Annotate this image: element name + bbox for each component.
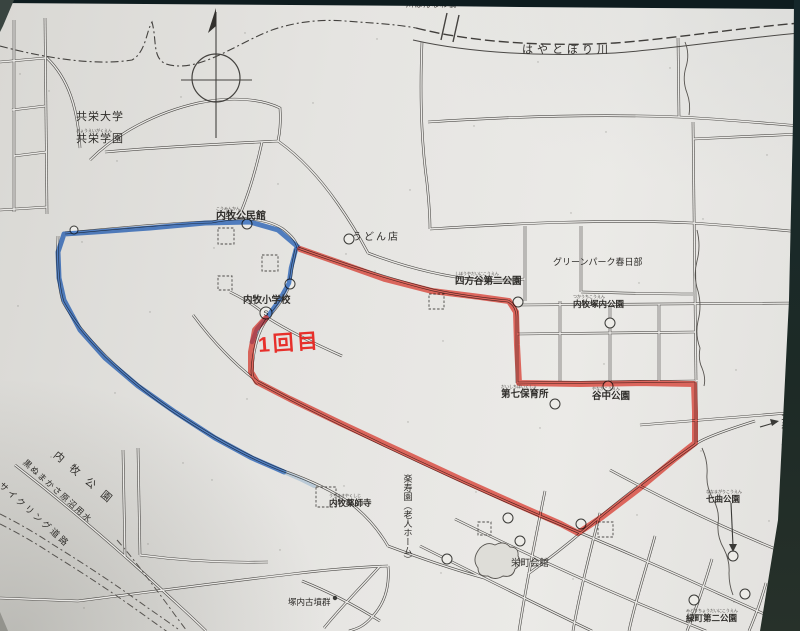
map-photo: S 共栄大学きょうえいがくえん共栄学園川はんなわ橋はやとぼり川こうみんかん内牧公… xyxy=(0,0,800,631)
map-label-nanamagari-park-text: 七曲公園 xyxy=(706,494,740,504)
map-label-hannawa-bridge: 川はんなわ橋 xyxy=(406,1,457,9)
handwritten-note-day1: 1回目 xyxy=(257,325,322,359)
map-label-uchimaki-elementary: 内牧小学校 xyxy=(243,296,291,306)
map-label-daishichi-nursery-text: 第七保育所 xyxy=(501,389,549,400)
map-label-hayatobori-river: はやとぼり川 xyxy=(522,45,612,57)
map-label-rakujuen-home-text: 楽寿園（老人ホーム） xyxy=(402,474,412,564)
map-label-midoricho-daini-park-text: 緑町第二公園 xyxy=(686,613,737,623)
map-label-kofun-group: 塚内古墳群 xyxy=(288,598,331,607)
map-label-kominkan: こうみんかん内牧公民館 xyxy=(216,207,266,223)
map-label-sakaecho-hall: 栄町会館 xyxy=(511,559,549,569)
map-label-tsukauchi-park: つかうちこうえん内牧塚内公園 xyxy=(573,295,624,309)
map-label-tsukauchi-park-text: 内牧塚内公園 xyxy=(573,299,624,309)
map-label-shihoya-daini-park: しほうやだいにこうえん四方谷第二公園 xyxy=(455,272,522,287)
map-label-uchimaki-elementary-text: 内牧小学校 xyxy=(243,295,291,306)
map-label-rakujuen-home: 楽寿園（老人ホーム） xyxy=(402,474,411,564)
map-labels-layer: 共栄大学きょうえいがくえん共栄学園川はんなわ橋はやとぼり川こうみんかん内牧公民館… xyxy=(0,0,800,631)
map-label-kita-kasukabe-station-text: 北春日部駅 xyxy=(779,412,790,460)
map-label-kita-kasukabe-station: 北春日部駅 xyxy=(779,412,789,460)
map-label-yakushiji-temple: うちまきやくしじ内牧薬師寺 xyxy=(329,494,372,508)
map-label-yanaka-park: やなかこうえん谷中公園 xyxy=(592,387,630,402)
map-label-yanaka-park-text: 谷中公園 xyxy=(592,391,630,402)
map-label-kofun-group-text: 塚内古墳群 xyxy=(288,597,331,607)
map-label-udon-shop: うどん店 xyxy=(352,233,400,244)
map-label-kyoei-univ: 共栄大学 xyxy=(76,112,124,124)
map-label-kyoei-univ-text: 共栄大学 xyxy=(76,111,124,123)
map-label-yakushiji-temple-text: 内牧薬師寺 xyxy=(329,498,372,508)
map-label-greenpark-kasukabe: グリーンパーク春日部 xyxy=(553,258,643,267)
map-label-daishichi-nursery: だいしちほいくしょ第七保育所 xyxy=(501,385,549,400)
map-label-midoricho-daini-park: みどりちょうだいにこうえん緑町第二公園 xyxy=(686,609,738,623)
map-label-greenpark-kasukabe-text: グリーンパーク春日部 xyxy=(553,257,643,267)
map-label-kominkan-text: 内牧公民館 xyxy=(216,211,266,222)
map-label-kyoei-gakuen-text: 共栄学園 xyxy=(76,133,124,145)
map-label-sakaecho-hall-text: 栄町会館 xyxy=(511,558,549,569)
map-label-hannawa-bridge-text: 川はんなわ橋 xyxy=(406,0,457,9)
map-label-nanamagari-park: ななまがりこうえん七曲公園 xyxy=(706,490,742,504)
map-label-shihoya-daini-park-text: 四方谷第二公園 xyxy=(455,276,522,287)
map-label-kyoei-gakuen: きょうえいがくえん共栄学園 xyxy=(76,129,124,146)
map-label-hayatobori-river-text: はやとぼり川 xyxy=(522,44,612,56)
map-label-udon-shop-text: うどん店 xyxy=(352,232,400,243)
